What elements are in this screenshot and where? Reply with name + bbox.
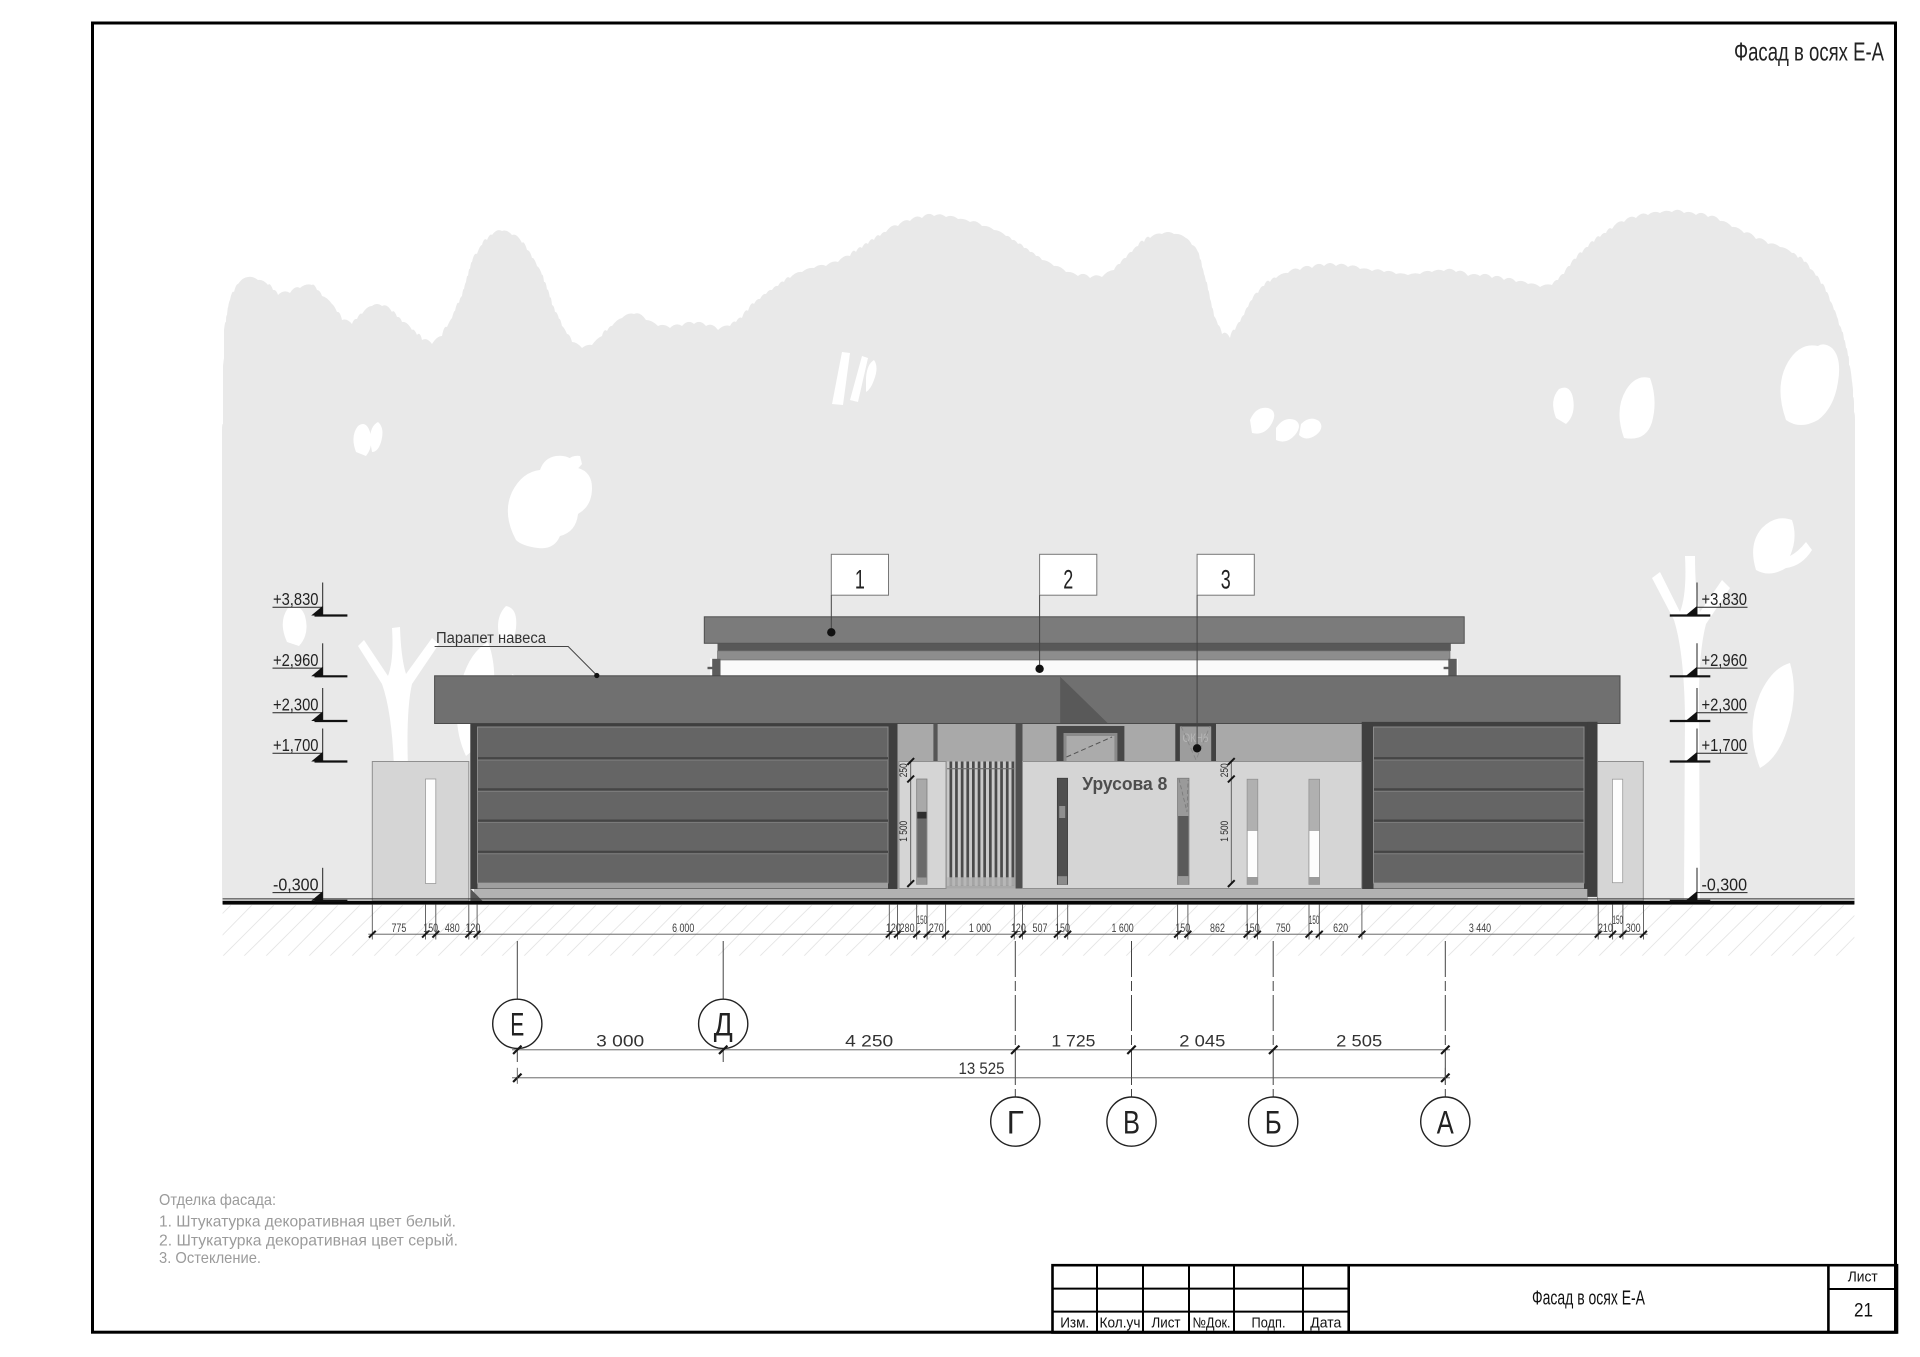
svg-text:2: 2: [1063, 565, 1073, 595]
svg-text:+1,700: +1,700: [1702, 735, 1748, 755]
svg-text:Урусова 8: Урусова 8: [1082, 773, 1167, 794]
svg-text:Д: Д: [714, 1007, 733, 1043]
svg-text:+2,300: +2,300: [1702, 695, 1748, 715]
svg-text:Е: Е: [510, 1007, 524, 1043]
svg-text:1 000: 1 000: [969, 921, 991, 935]
svg-text:Парапет навеса: Парапет навеса: [436, 630, 546, 647]
svg-text:+1,700: +1,700: [273, 735, 319, 755]
svg-text:6 000: 6 000: [672, 921, 694, 935]
svg-text:№Док.: №Док.: [1193, 1316, 1231, 1332]
svg-text:Подп.: Подп.: [1252, 1316, 1286, 1332]
svg-text:-0,300: -0,300: [273, 874, 319, 894]
svg-text:2. Штукатурка декоративная цве: 2. Штукатурка декоративная цвет серый.: [159, 1233, 458, 1250]
svg-text:250: 250: [1219, 763, 1231, 777]
svg-text:2 505: 2 505: [1336, 1033, 1382, 1051]
svg-text:Фасад в осях Е-А: Фасад в осях Е-А: [1734, 37, 1884, 67]
svg-text:150: 150: [1309, 913, 1320, 927]
svg-text:-0,300: -0,300: [1702, 874, 1748, 894]
svg-text:+3,830: +3,830: [273, 589, 319, 609]
svg-text:Г: Г: [1007, 1104, 1024, 1140]
svg-text:775: 775: [391, 921, 406, 935]
svg-text:1 725: 1 725: [1051, 1033, 1095, 1051]
svg-text:+2,960: +2,960: [273, 650, 319, 670]
svg-text:150: 150: [917, 913, 928, 927]
svg-text:120: 120: [1011, 921, 1026, 935]
svg-text:750: 750: [1276, 921, 1291, 935]
svg-text:1 500: 1 500: [1219, 821, 1231, 842]
svg-text:В: В: [1123, 1104, 1140, 1140]
svg-text:1 500: 1 500: [898, 821, 910, 842]
svg-text:Отделка фасада:: Отделка фасада:: [159, 1192, 276, 1209]
svg-text:150: 150: [1245, 921, 1260, 935]
svg-text:862: 862: [1210, 921, 1225, 935]
svg-text:480: 480: [445, 921, 460, 935]
svg-text:3 440: 3 440: [1469, 921, 1491, 935]
svg-text:150: 150: [1175, 921, 1190, 935]
svg-text:1 600: 1 600: [1112, 921, 1134, 935]
svg-text:280: 280: [900, 921, 915, 935]
svg-text:120: 120: [465, 921, 480, 935]
svg-text:150: 150: [1613, 913, 1624, 927]
svg-text:Изм.: Изм.: [1060, 1316, 1089, 1332]
svg-text:300: 300: [1626, 921, 1641, 935]
svg-text:3: 3: [1221, 565, 1231, 595]
svg-text:1: 1: [855, 565, 865, 595]
svg-text:Фасад в осях Е-А: Фасад в осях Е-А: [1532, 1288, 1645, 1310]
svg-text:21: 21: [1854, 1301, 1873, 1322]
svg-text:+3,830: +3,830: [1702, 589, 1748, 609]
svg-text:4 250: 4 250: [845, 1033, 893, 1051]
svg-text:3 000: 3 000: [596, 1033, 644, 1051]
svg-text:2 045: 2 045: [1179, 1033, 1225, 1051]
svg-text:+2,300: +2,300: [273, 695, 319, 715]
svg-text:150: 150: [1055, 921, 1070, 935]
svg-text:Б: Б: [1265, 1104, 1282, 1140]
svg-text:13 525: 13 525: [959, 1060, 1005, 1078]
svg-text:210: 210: [1598, 921, 1613, 935]
svg-text:Кол.уч: Кол.уч: [1100, 1316, 1141, 1332]
svg-text:Дата: Дата: [1310, 1316, 1342, 1332]
svg-text:250: 250: [898, 763, 910, 777]
svg-text:620: 620: [1333, 921, 1348, 935]
svg-text:270: 270: [929, 921, 944, 935]
svg-text:507: 507: [1033, 921, 1048, 935]
svg-text:А: А: [1437, 1104, 1455, 1140]
svg-text:1. Штукатурка декоративная цве: 1. Штукатурка декоративная цвет белый.: [159, 1214, 456, 1231]
svg-text:3. Остекление.: 3. Остекление.: [159, 1250, 261, 1267]
svg-text:+2,960: +2,960: [1702, 650, 1748, 670]
svg-text:Лист: Лист: [1152, 1316, 1181, 1332]
svg-text:Лист: Лист: [1848, 1269, 1878, 1286]
svg-text:150: 150: [423, 921, 438, 935]
